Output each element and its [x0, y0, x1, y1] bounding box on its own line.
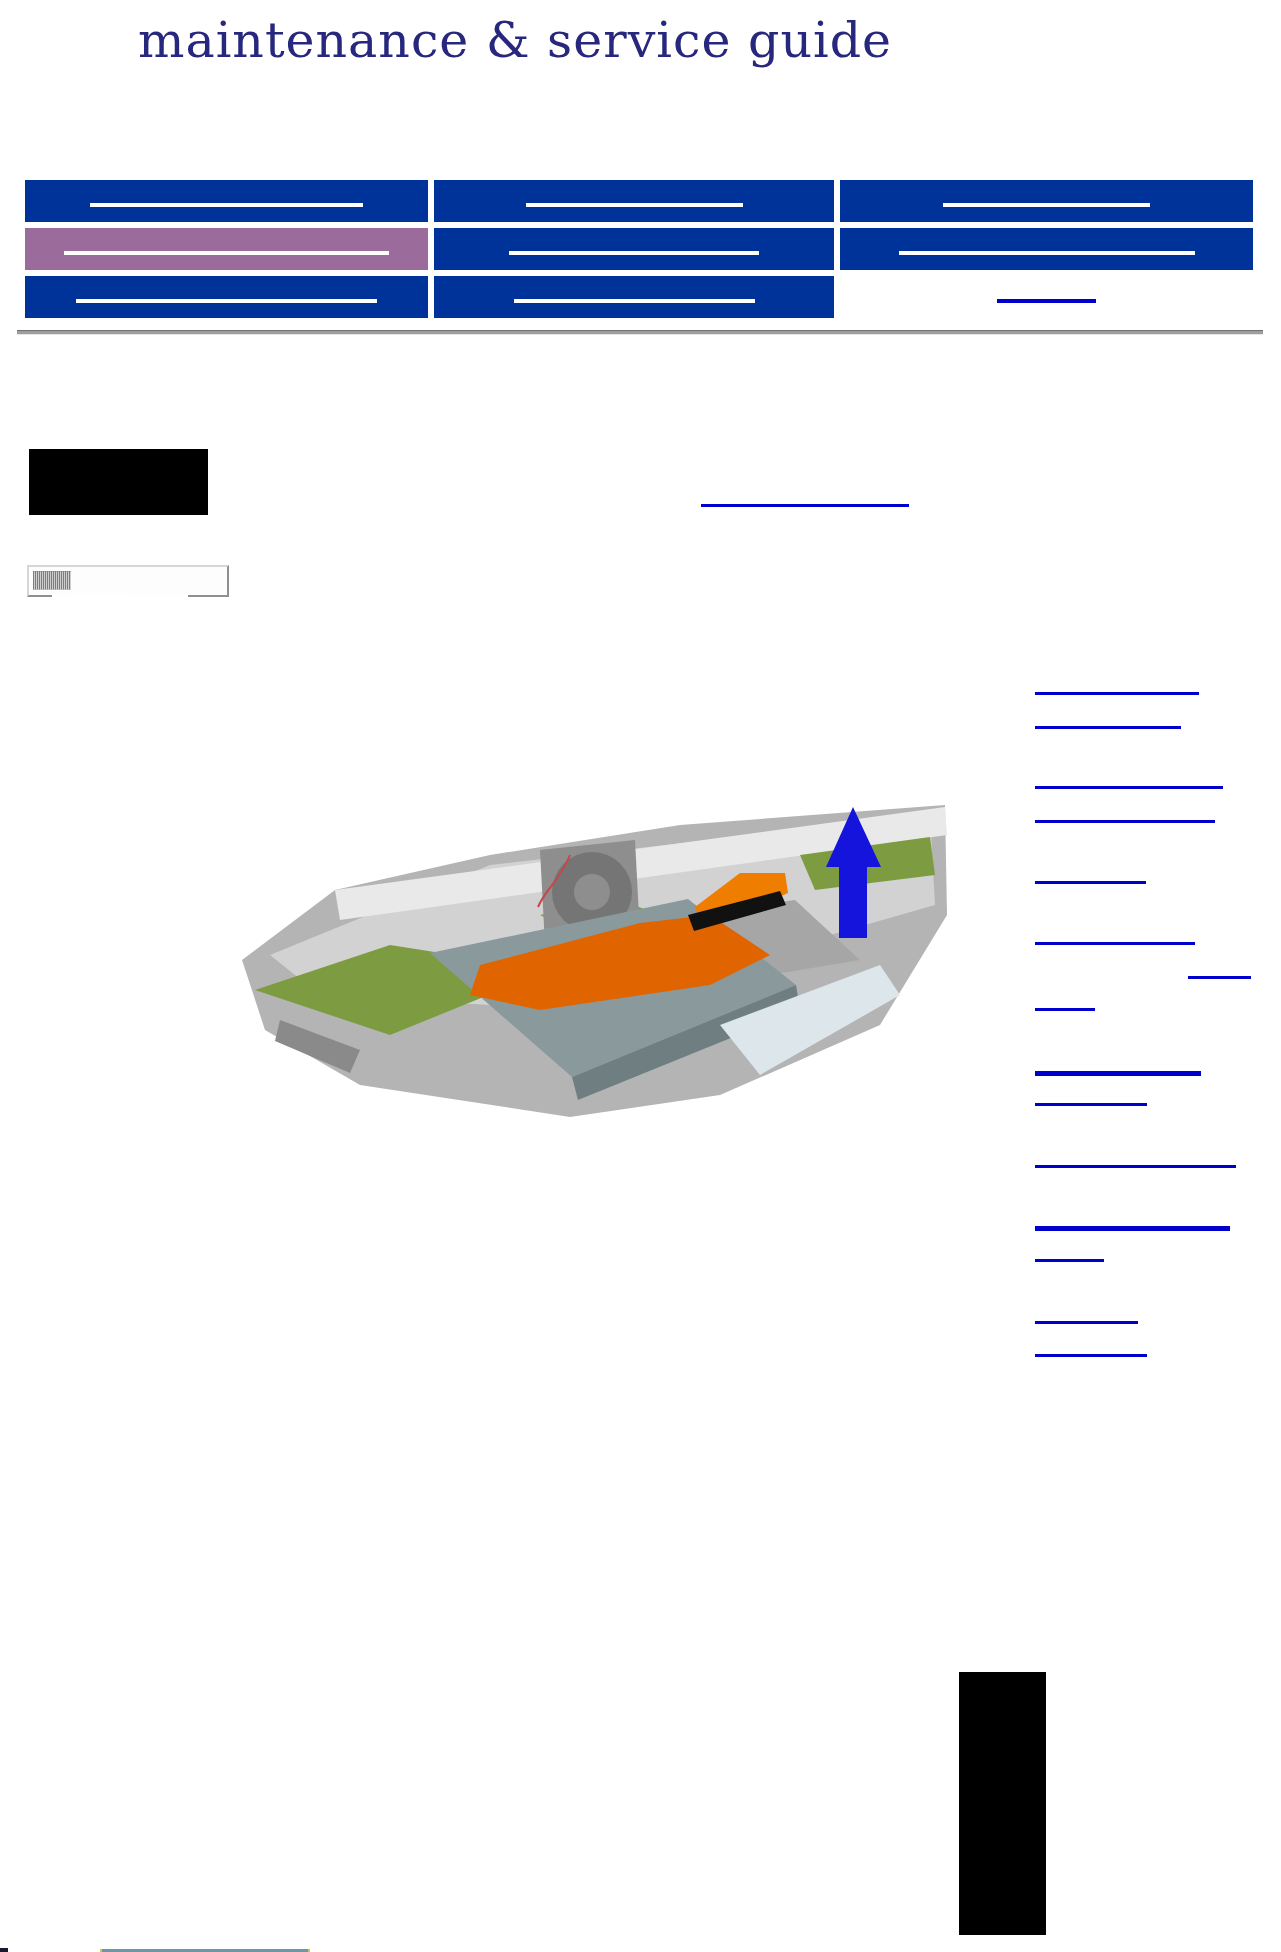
related-link-underline[interactable]: [1035, 942, 1195, 945]
page-bottom-corner-square: [0, 1948, 8, 1952]
related-link-underline[interactable]: [1035, 1259, 1104, 1262]
nav-link-cell[interactable]: [434, 228, 834, 270]
related-link-underline[interactable]: [1035, 1321, 1138, 1324]
laptop-disassembly-illustration: [240, 795, 950, 1124]
nav-link-cell[interactable]: [434, 276, 834, 318]
nav-link-cell[interactable]: [25, 180, 428, 222]
body-link-underline[interactable]: [701, 504, 909, 507]
sidebar-link-underline: [78, 632, 175, 634]
sidebar-link-underline: [72, 593, 129, 595]
nav-link-underline: [76, 299, 377, 303]
nav-link-underline: [514, 299, 755, 303]
related-link-underline[interactable]: [1188, 976, 1251, 979]
nav-row: [25, 180, 1259, 222]
related-link-underline[interactable]: [1035, 786, 1223, 789]
nav-link-cell[interactable]: [840, 180, 1253, 222]
nav-link-underline: [997, 299, 1096, 303]
sidebar-menu: [27, 565, 229, 597]
sidebar-link-underline: [72, 627, 201, 629]
nav-link-underline: [64, 251, 389, 255]
sidebar-link-underline: [60, 664, 140, 666]
nav-link-underline: [509, 251, 759, 255]
nav-table: [25, 180, 1259, 324]
nav-link-cell[interactable]: [840, 228, 1253, 270]
nav-link-cell[interactable]: [434, 180, 834, 222]
section-heading-image-placeholder: [29, 449, 208, 515]
footer-image-placeholder: [959, 1672, 1046, 1935]
nav-link-underline: [526, 203, 743, 207]
sidebar-link-underline: [78, 599, 195, 601]
nav-link-underline: [943, 203, 1150, 207]
related-link-underline[interactable]: [1035, 1008, 1095, 1011]
nav-link-cell[interactable]: [840, 276, 1253, 318]
related-link-underline[interactable]: [1035, 726, 1181, 729]
horizontal-rule: [17, 330, 1263, 335]
related-link-underline[interactable]: [1035, 1103, 1147, 1106]
related-link-underline[interactable]: [1035, 1354, 1147, 1357]
related-link-underline[interactable]: [1035, 1165, 1236, 1168]
nav-link-underline: [899, 251, 1195, 255]
page-title: maintenance & service guide: [0, 12, 1030, 69]
service-guide-page: maintenance & service guide: [0, 0, 1281, 1952]
nav-row: [25, 228, 1259, 270]
nav-link-underline: [90, 203, 363, 207]
sidebar-menu-cell[interactable]: [69, 571, 71, 590]
related-link-underline[interactable]: [1035, 1226, 1230, 1231]
related-link-underline[interactable]: [1035, 881, 1146, 884]
related-link-underline[interactable]: [1035, 820, 1215, 823]
nav-link-cell[interactable]: [25, 276, 428, 318]
related-link-underline[interactable]: [1035, 1071, 1201, 1076]
related-link-underline[interactable]: [1035, 692, 1199, 695]
nav-link-cell[interactable]: [25, 228, 428, 270]
nav-row: [25, 276, 1259, 318]
